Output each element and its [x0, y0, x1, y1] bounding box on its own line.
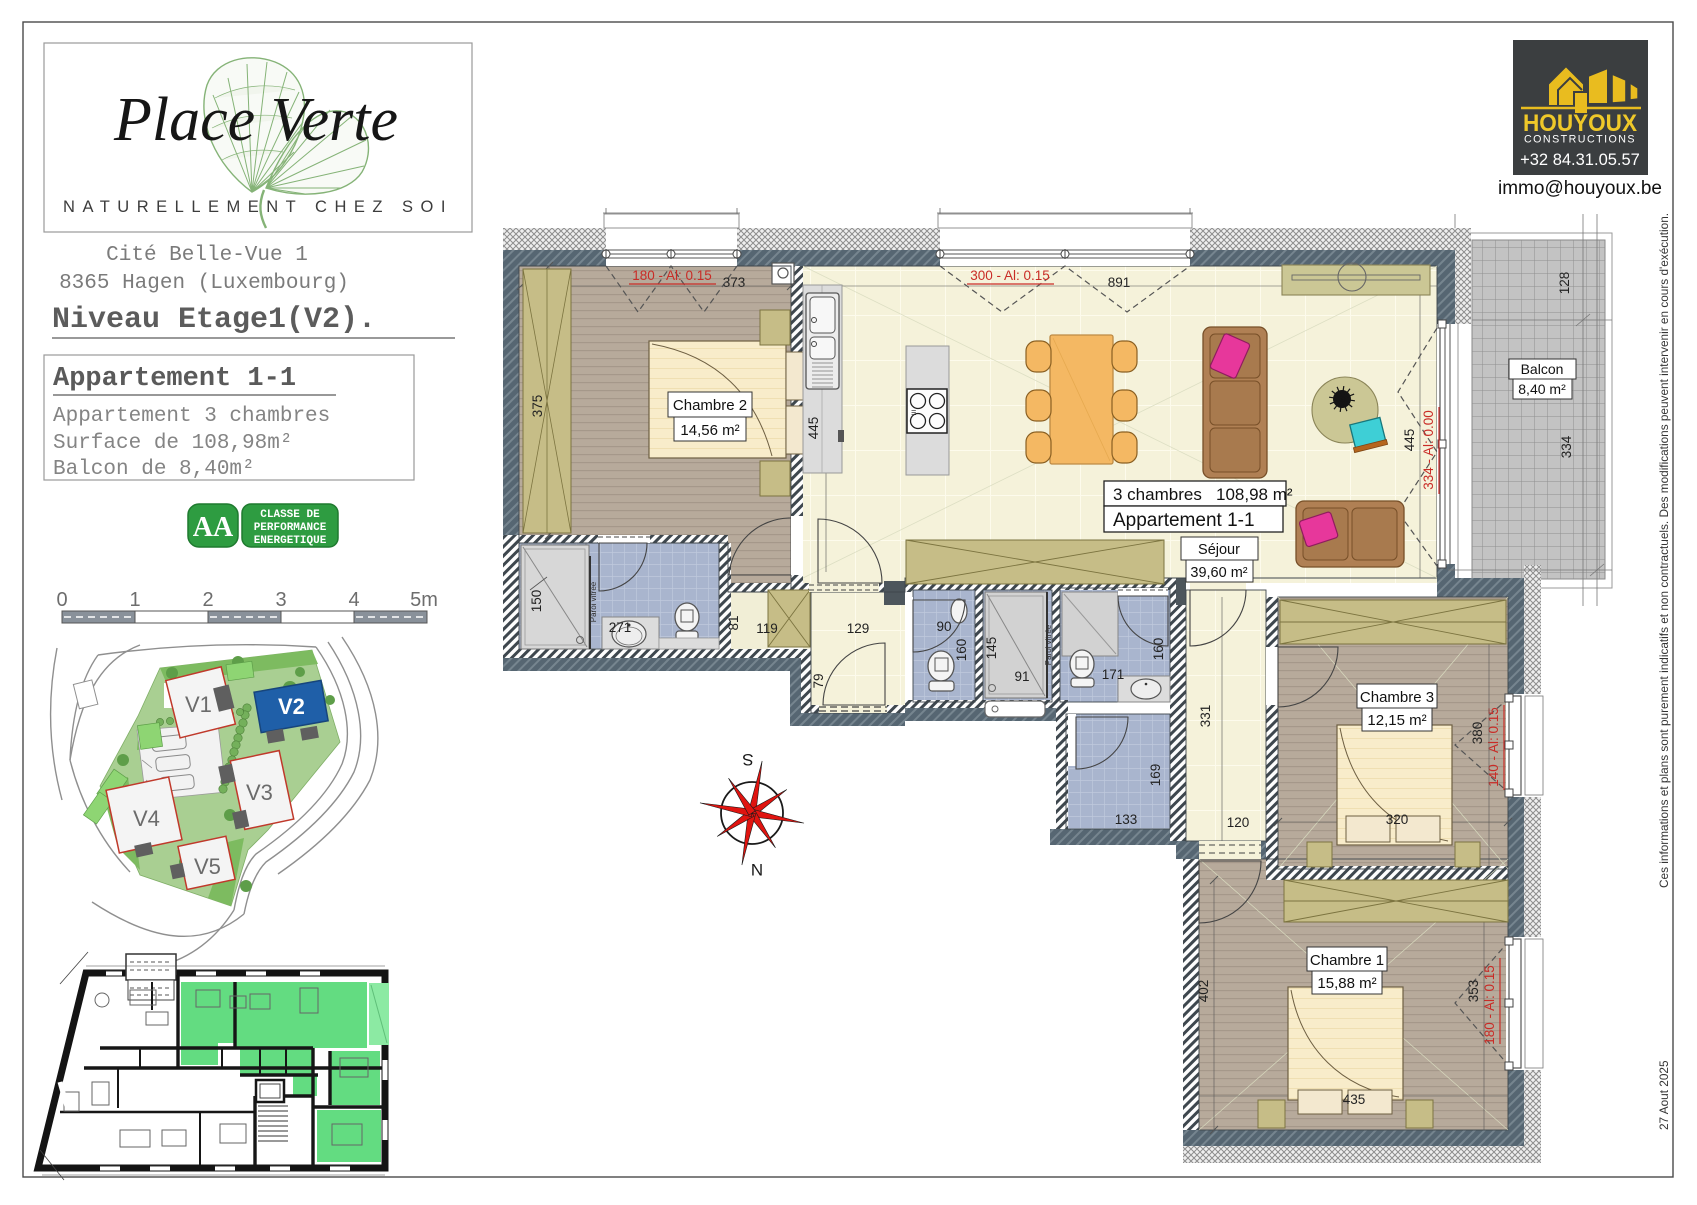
svg-text:108,98 m²: 108,98 m²: [1216, 485, 1293, 504]
svg-text:120: 120: [1227, 815, 1250, 830]
svg-text:27 Aout 2025: 27 Aout 2025: [1657, 1060, 1671, 1130]
svg-text:353: 353: [1466, 980, 1481, 1003]
svg-text:180 - Al: 0.15: 180 - Al: 0.15: [632, 268, 712, 283]
svg-text:Surface de 108,98m²: Surface de 108,98m²: [53, 432, 292, 455]
svg-text:160: 160: [1151, 638, 1166, 661]
svg-text:435: 435: [1343, 1092, 1366, 1107]
svg-text:150: 150: [529, 590, 544, 613]
svg-text:S: S: [742, 750, 753, 769]
svg-text:1: 1: [129, 589, 140, 611]
svg-text:331: 331: [1198, 705, 1213, 728]
svg-text:5m: 5m: [410, 589, 438, 611]
svg-text:271: 271: [609, 620, 632, 635]
svg-text:V2: V2: [278, 694, 305, 719]
svg-text:39,60 m²: 39,60 m²: [1190, 565, 1247, 581]
svg-text:119: 119: [756, 621, 778, 636]
svg-text:445: 445: [806, 417, 821, 440]
svg-text:Place Verte: Place Verte: [113, 86, 398, 154]
svg-text:15,88 m²: 15,88 m²: [1317, 975, 1376, 992]
svg-text:Séjour: Séjour: [1198, 542, 1240, 558]
svg-text:Ces informations et plans sont: Ces informations et plans sont purement …: [1657, 213, 1671, 888]
svg-text:V3: V3: [246, 780, 273, 805]
svg-text:Paroi vitrée: Paroi vitrée: [1044, 624, 1053, 665]
svg-text:169: 169: [1148, 764, 1163, 787]
svg-text:129: 129: [847, 621, 870, 636]
svg-text:140 - Al: 0.15: 140 - Al: 0.15: [1486, 707, 1501, 787]
svg-text:3 chambres: 3 chambres: [1113, 485, 1202, 504]
svg-text:N: N: [751, 860, 763, 879]
svg-text:Cité Belle-Vue 1: Cité Belle-Vue 1: [106, 244, 308, 267]
svg-text:Chambre 1: Chambre 1: [1310, 952, 1384, 969]
svg-text:Balcon de 8,40m²: Balcon de 8,40m²: [53, 458, 255, 481]
svg-text:8,40 m²: 8,40 m²: [1518, 381, 1566, 397]
svg-text:Paroi vitrée: Paroi vitrée: [589, 581, 598, 622]
svg-text:90: 90: [936, 619, 951, 634]
svg-text:160: 160: [954, 639, 969, 662]
svg-text:402: 402: [1196, 980, 1211, 1003]
svg-text:128: 128: [1557, 272, 1572, 295]
svg-text:Niveau Etage1(V2).: Niveau Etage1(V2).: [52, 303, 376, 337]
svg-text:4: 4: [348, 589, 359, 611]
svg-text:CONSTRUCTIONS: CONSTRUCTIONS: [1524, 134, 1636, 146]
svg-text:81: 81: [726, 615, 741, 630]
svg-text:3: 3: [275, 589, 286, 611]
svg-text:8365 Hagen (Luxembourg): 8365 Hagen (Luxembourg): [59, 272, 349, 295]
svg-text:79: 79: [811, 673, 826, 688]
svg-text:12,15 m²: 12,15 m²: [1367, 712, 1426, 729]
svg-text:334: 334: [1559, 435, 1574, 458]
svg-text:0: 0: [56, 589, 67, 611]
svg-text:445: 445: [1402, 429, 1417, 452]
svg-text:Appartement 1-1: Appartement 1-1: [53, 364, 296, 394]
svg-text:300 - Al: 0.15: 300 - Al: 0.15: [970, 268, 1050, 283]
svg-text:NATURELLEMENT CHEZ SOI: NATURELLEMENT CHEZ SOI: [63, 198, 453, 216]
svg-text:171: 171: [1102, 667, 1125, 682]
svg-text:891: 891: [1108, 275, 1131, 290]
svg-text:CLASSE DE: CLASSE DE: [260, 509, 320, 521]
svg-text:320: 320: [1386, 812, 1409, 827]
svg-text:V5: V5: [194, 854, 221, 879]
svg-text:Balcon: Balcon: [1521, 361, 1564, 377]
svg-text:145: 145: [984, 637, 999, 660]
svg-text:PERFORMANCE: PERFORMANCE: [254, 522, 327, 534]
svg-text:133: 133: [1115, 812, 1138, 827]
svg-text:2: 2: [202, 589, 213, 611]
svg-text:Chambre 2: Chambre 2: [673, 397, 747, 414]
svg-text:375: 375: [530, 395, 545, 418]
svg-text:14,56 m²: 14,56 m²: [680, 422, 739, 439]
svg-text:334 - Al: 0.00: 334 - Al: 0.00: [1421, 410, 1436, 490]
svg-text:380: 380: [1470, 722, 1485, 745]
svg-text:373: 373: [723, 275, 746, 290]
svg-text:immo@houyoux.be: immo@houyoux.be: [1498, 178, 1662, 199]
svg-text:Appartement 1-1: Appartement 1-1: [1113, 510, 1255, 531]
svg-text:AA: AA: [193, 512, 234, 543]
svg-text:Appartement 3 chambres: Appartement 3 chambres: [53, 405, 330, 428]
svg-text:+32 84.31.05.57: +32 84.31.05.57: [1520, 151, 1640, 169]
svg-text:Chambre 3: Chambre 3: [1360, 689, 1434, 706]
svg-text:V4: V4: [133, 806, 160, 831]
svg-text:91: 91: [1014, 669, 1029, 684]
svg-text:ENERGETIQUE: ENERGETIQUE: [254, 535, 327, 547]
svg-text:V1: V1: [185, 692, 212, 717]
svg-text:☰: ☰: [911, 410, 916, 417]
